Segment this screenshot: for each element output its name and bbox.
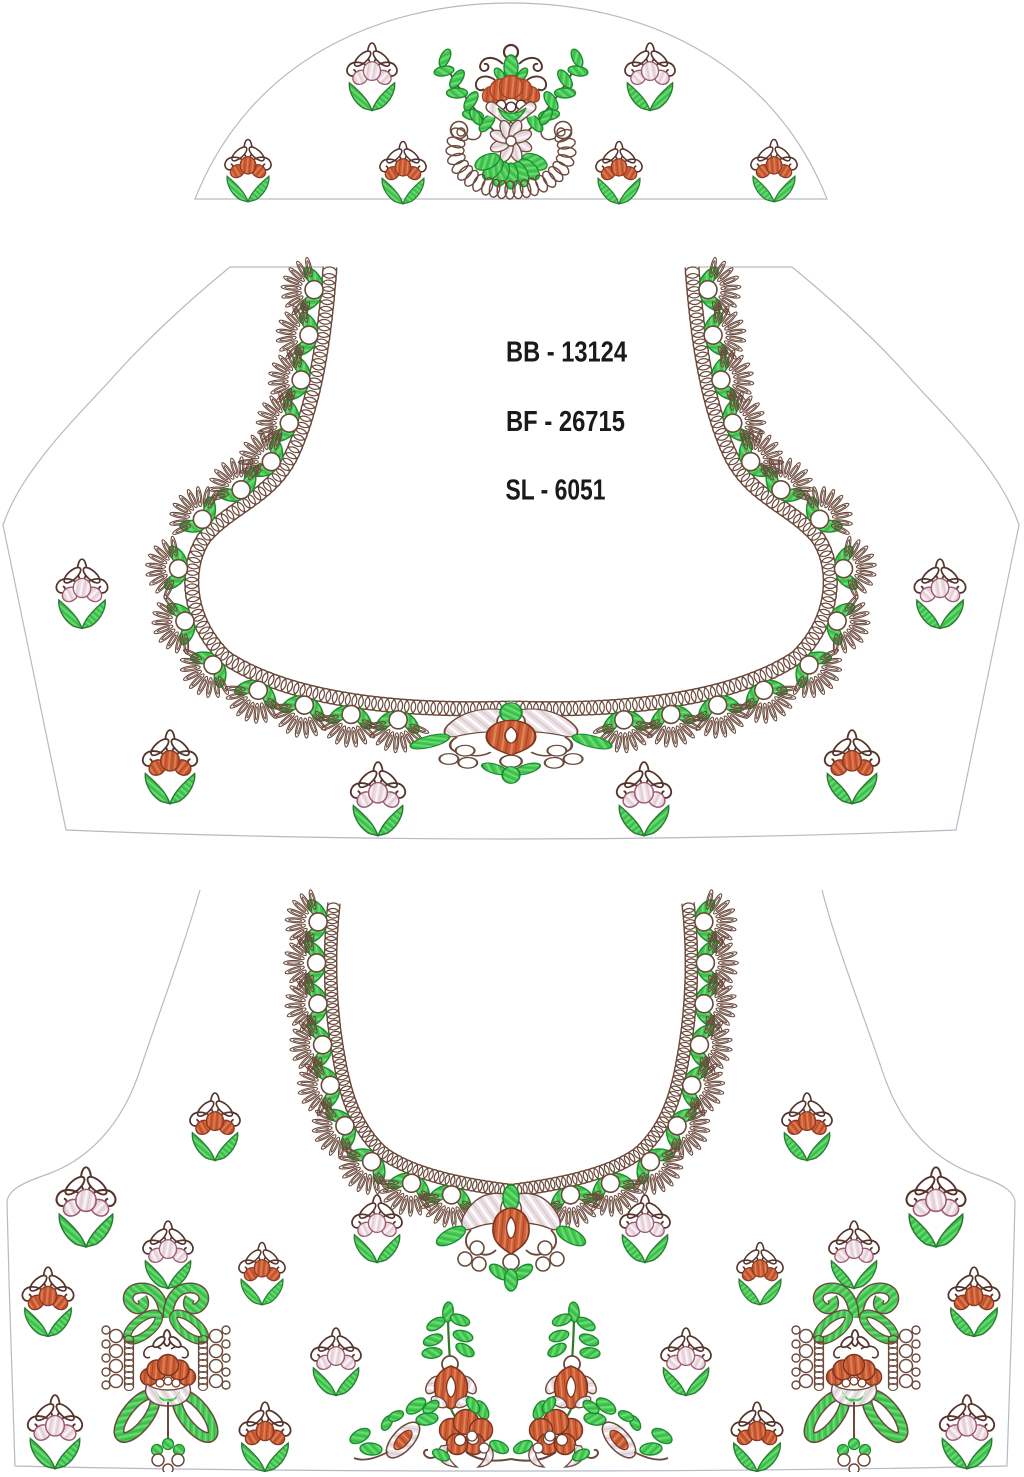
svg-text:BB - 13124: BB - 13124 <box>506 337 627 369</box>
svg-text:SL - 6051: SL - 6051 <box>506 475 606 507</box>
svg-text:BF - 26715: BF - 26715 <box>506 406 625 438</box>
